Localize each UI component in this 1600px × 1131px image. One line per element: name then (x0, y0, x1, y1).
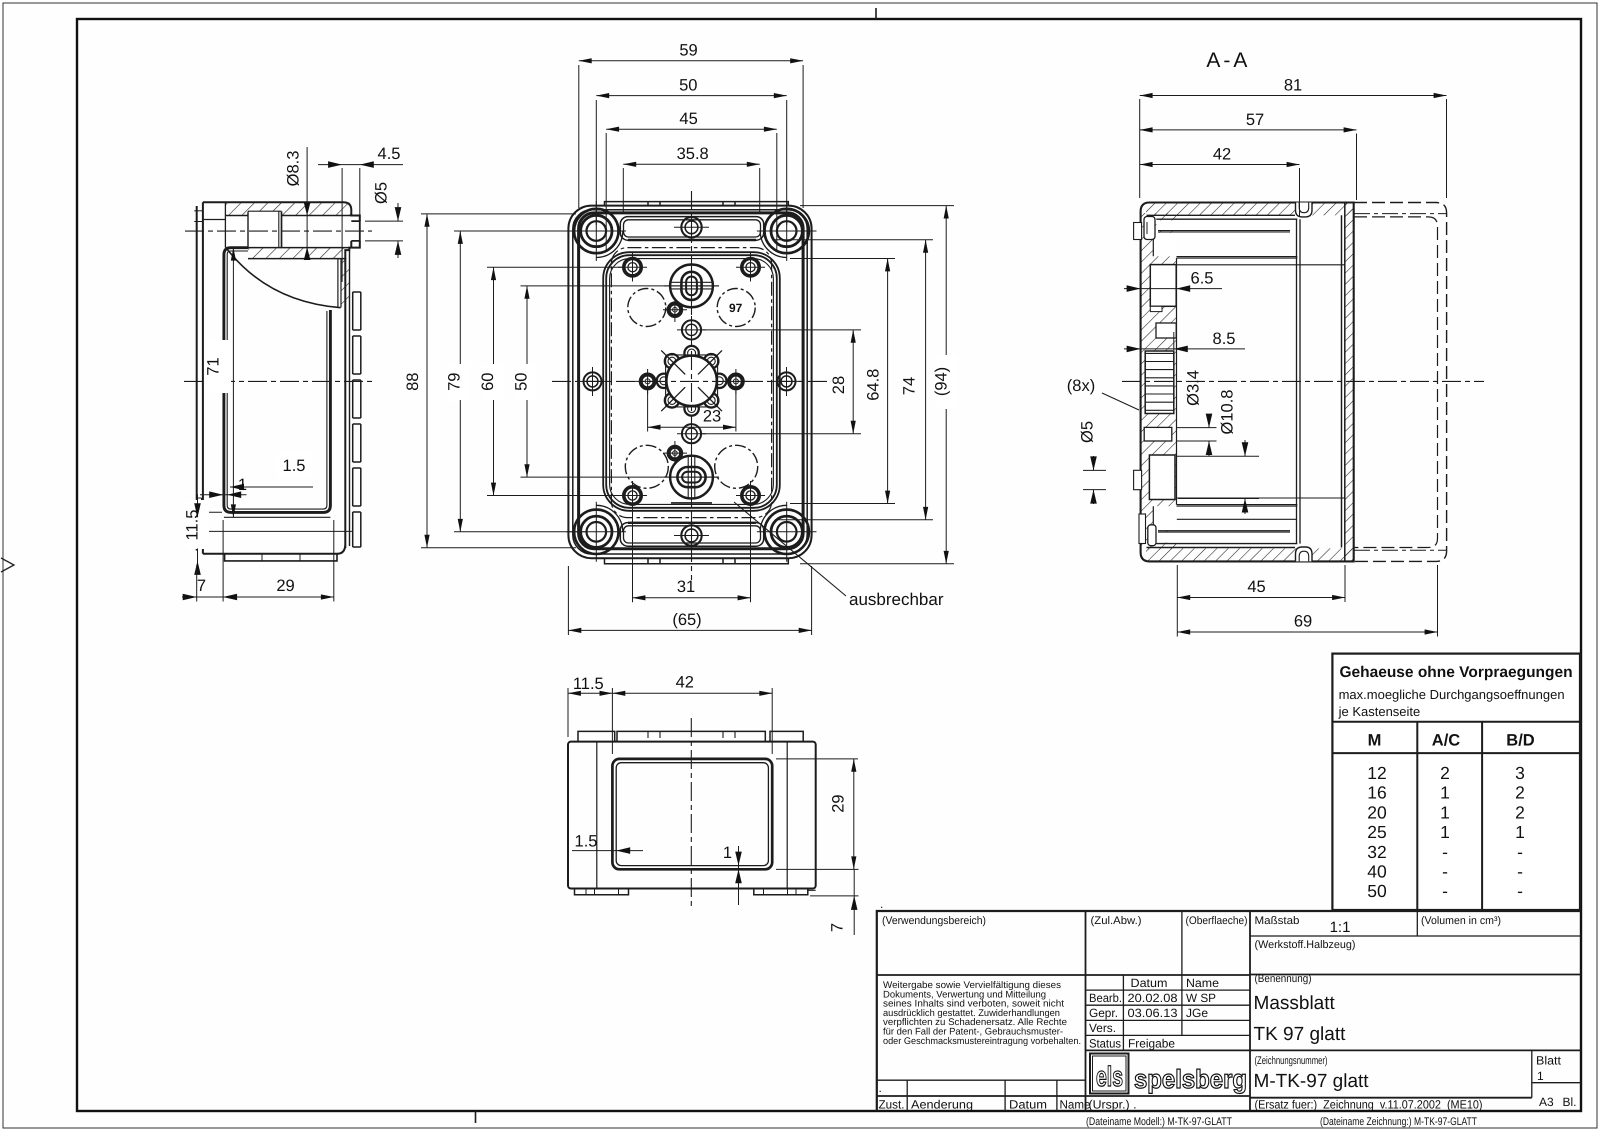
svg-text:40: 40 (1367, 862, 1387, 882)
svg-text:je Kastenseite: je Kastenseite (1338, 704, 1421, 719)
svg-text:(94): (94) (933, 367, 951, 396)
svg-text:Ø5: Ø5 (373, 182, 391, 204)
svg-text:Zust.: Zust. (879, 1098, 905, 1112)
svg-text:Vers.: Vers. (1089, 1021, 1116, 1035)
svg-text:11.5: 11.5 (573, 675, 604, 693)
svg-text:(8x): (8x) (1067, 377, 1095, 395)
svg-text:6.5: 6.5 (1191, 270, 1214, 288)
svg-text:Maßstab: Maßstab (1255, 915, 1300, 927)
svg-text:23: 23 (703, 408, 721, 426)
svg-text:79: 79 (446, 373, 464, 391)
svg-text:Gepr.: Gepr. (1089, 1006, 1118, 1020)
svg-text:max.moegliche Durchgangsoeffnu: max.moegliche Durchgangsoeffnungen (1339, 687, 1565, 702)
svg-text:50: 50 (1367, 881, 1387, 901)
svg-text:Freigabe: Freigabe (1128, 1037, 1175, 1051)
svg-text:A-A: A-A (1206, 49, 1250, 72)
svg-text:45: 45 (1247, 578, 1265, 596)
svg-text:59: 59 (679, 42, 697, 60)
svg-text:57: 57 (1246, 111, 1264, 129)
svg-text:(Urspr.) .: (Urspr.) . (1089, 1098, 1137, 1112)
svg-text:69: 69 (1294, 613, 1312, 631)
svg-text:els: els (1096, 1061, 1123, 1092)
svg-text:29: 29 (830, 794, 848, 812)
svg-text:Gehaeuse ohne Vorpraegungen: Gehaeuse ohne Vorpraegungen (1339, 664, 1572, 681)
svg-text:.: . (879, 1081, 882, 1095)
svg-text:-: - (1517, 842, 1523, 862)
svg-text:.: . (880, 897, 883, 911)
svg-text:12: 12 (1367, 763, 1386, 783)
svg-text:1.5: 1.5 (575, 833, 598, 851)
svg-text:(Dateiname Modell:) M-TK-97-GL: (Dateiname Modell:) M-TK-97-GLATT (1086, 1116, 1232, 1128)
svg-text:ausbrechbar: ausbrechbar (849, 590, 944, 609)
svg-text:1: 1 (1537, 1069, 1544, 1083)
svg-text:8.5: 8.5 (1213, 330, 1236, 348)
svg-text:Blatt: Blatt (1536, 1054, 1562, 1068)
svg-text:1: 1 (1440, 783, 1450, 803)
svg-text:1: 1 (723, 844, 732, 862)
svg-text:M-TK-97 glatt: M-TK-97 glatt (1254, 1071, 1370, 1092)
svg-text:20.02.08: 20.02.08 (1128, 991, 1178, 1005)
svg-text:1:1: 1:1 (1330, 919, 1351, 936)
svg-text:64.8: 64.8 (865, 369, 883, 401)
svg-text:A3: A3 (1539, 1095, 1554, 1109)
svg-text:97: 97 (729, 301, 743, 315)
svg-text:16: 16 (1367, 783, 1386, 803)
svg-text:Bl.: Bl. (1563, 1095, 1577, 1109)
svg-text:(65): (65) (672, 611, 701, 629)
svg-text:42: 42 (676, 674, 694, 692)
svg-text:Bearb.: Bearb. (1089, 991, 1122, 1005)
svg-text:-: - (1442, 881, 1448, 901)
svg-text:B/D: B/D (1506, 732, 1535, 750)
svg-text:03.06.13: 03.06.13 (1128, 1006, 1178, 1020)
svg-text:Status: Status (1089, 1037, 1121, 1051)
svg-text:35.8: 35.8 (677, 145, 709, 163)
svg-text:42: 42 (1213, 146, 1231, 164)
svg-text:3: 3 (1515, 763, 1525, 783)
svg-text:(Dateiname Zeichnung:) M-TK-97: (Dateiname Zeichnung:) M-TK-97-GLATT (1320, 1116, 1477, 1128)
svg-text:Massblatt: Massblatt (1254, 993, 1336, 1014)
svg-text:4.5: 4.5 (378, 145, 401, 163)
svg-text:60: 60 (479, 373, 497, 391)
svg-text:(Volumen in cm³): (Volumen in cm³) (1421, 915, 1501, 927)
svg-text:(Verwendungsbereich): (Verwendungsbereich) (882, 915, 986, 927)
svg-text:(Zul.Abw.): (Zul.Abw.) (1091, 915, 1142, 927)
svg-text:(Oberflaeche): (Oberflaeche) (1186, 915, 1248, 927)
svg-text:29: 29 (276, 577, 294, 595)
svg-text:Ø3.4: Ø3.4 (1185, 370, 1203, 406)
svg-text:2: 2 (1515, 783, 1525, 803)
svg-text:88: 88 (404, 373, 422, 391)
svg-text:M: M (1368, 732, 1382, 750)
svg-text:11.5: 11.5 (184, 510, 202, 541)
svg-text:7: 7 (197, 577, 206, 595)
svg-text:81: 81 (1284, 77, 1302, 95)
svg-text:(Ersatz fuer:) Zeichnung v.1: (Ersatz fuer:) Zeichnung v.11.07.2002 (M… (1255, 1098, 1483, 1112)
svg-text:A/C: A/C (1432, 732, 1461, 750)
svg-text:-: - (1517, 862, 1523, 882)
svg-text:Datum: Datum (1009, 1098, 1047, 1112)
svg-text:2: 2 (1440, 763, 1450, 783)
svg-text:oder Geschmacksmustereintragun: oder Geschmacksmustereintragung vorbehal… (883, 1036, 1081, 1047)
svg-text:Aenderung: Aenderung (911, 1098, 973, 1112)
svg-text:31: 31 (677, 578, 695, 596)
svg-text:1.5: 1.5 (283, 457, 306, 475)
svg-text:Name: Name (1186, 976, 1219, 990)
svg-text:28: 28 (830, 376, 848, 394)
svg-text:2: 2 (1515, 802, 1525, 822)
svg-text:7: 7 (829, 923, 847, 932)
svg-text:JGe: JGe (1186, 1006, 1208, 1020)
svg-text:45: 45 (679, 110, 697, 128)
svg-text:(Zeichnungsnummer): (Zeichnungsnummer) (1255, 1055, 1328, 1067)
svg-text:W SP: W SP (1186, 991, 1216, 1005)
svg-text:32: 32 (1367, 842, 1386, 862)
svg-text:-: - (1442, 842, 1448, 862)
svg-text:20: 20 (1367, 802, 1387, 822)
svg-text:50: 50 (513, 373, 531, 391)
svg-text:(Werkstoff.Halbzeug): (Werkstoff.Halbzeug) (1255, 939, 1356, 951)
svg-text:25: 25 (1367, 822, 1386, 842)
svg-text:(Benennung): (Benennung) (1255, 973, 1312, 985)
svg-text:74: 74 (901, 377, 919, 395)
svg-text:Ø5: Ø5 (1079, 421, 1097, 443)
svg-text:-: - (1442, 862, 1448, 882)
svg-text:spelsberg: spelsberg (1134, 1064, 1247, 1094)
svg-text:-: - (1517, 881, 1523, 901)
svg-text:1: 1 (1515, 822, 1525, 842)
svg-text:71: 71 (205, 357, 223, 375)
svg-text:Ø10.8: Ø10.8 (1219, 390, 1237, 435)
svg-text:1: 1 (1440, 802, 1450, 822)
svg-text:Ø8.3: Ø8.3 (284, 151, 302, 187)
svg-text:Name: Name (1060, 1098, 1091, 1112)
svg-text:TK 97 glatt: TK 97 glatt (1254, 1024, 1347, 1045)
svg-text:50: 50 (679, 76, 697, 94)
svg-text:1: 1 (1440, 822, 1450, 842)
svg-text:Datum: Datum (1131, 976, 1168, 990)
